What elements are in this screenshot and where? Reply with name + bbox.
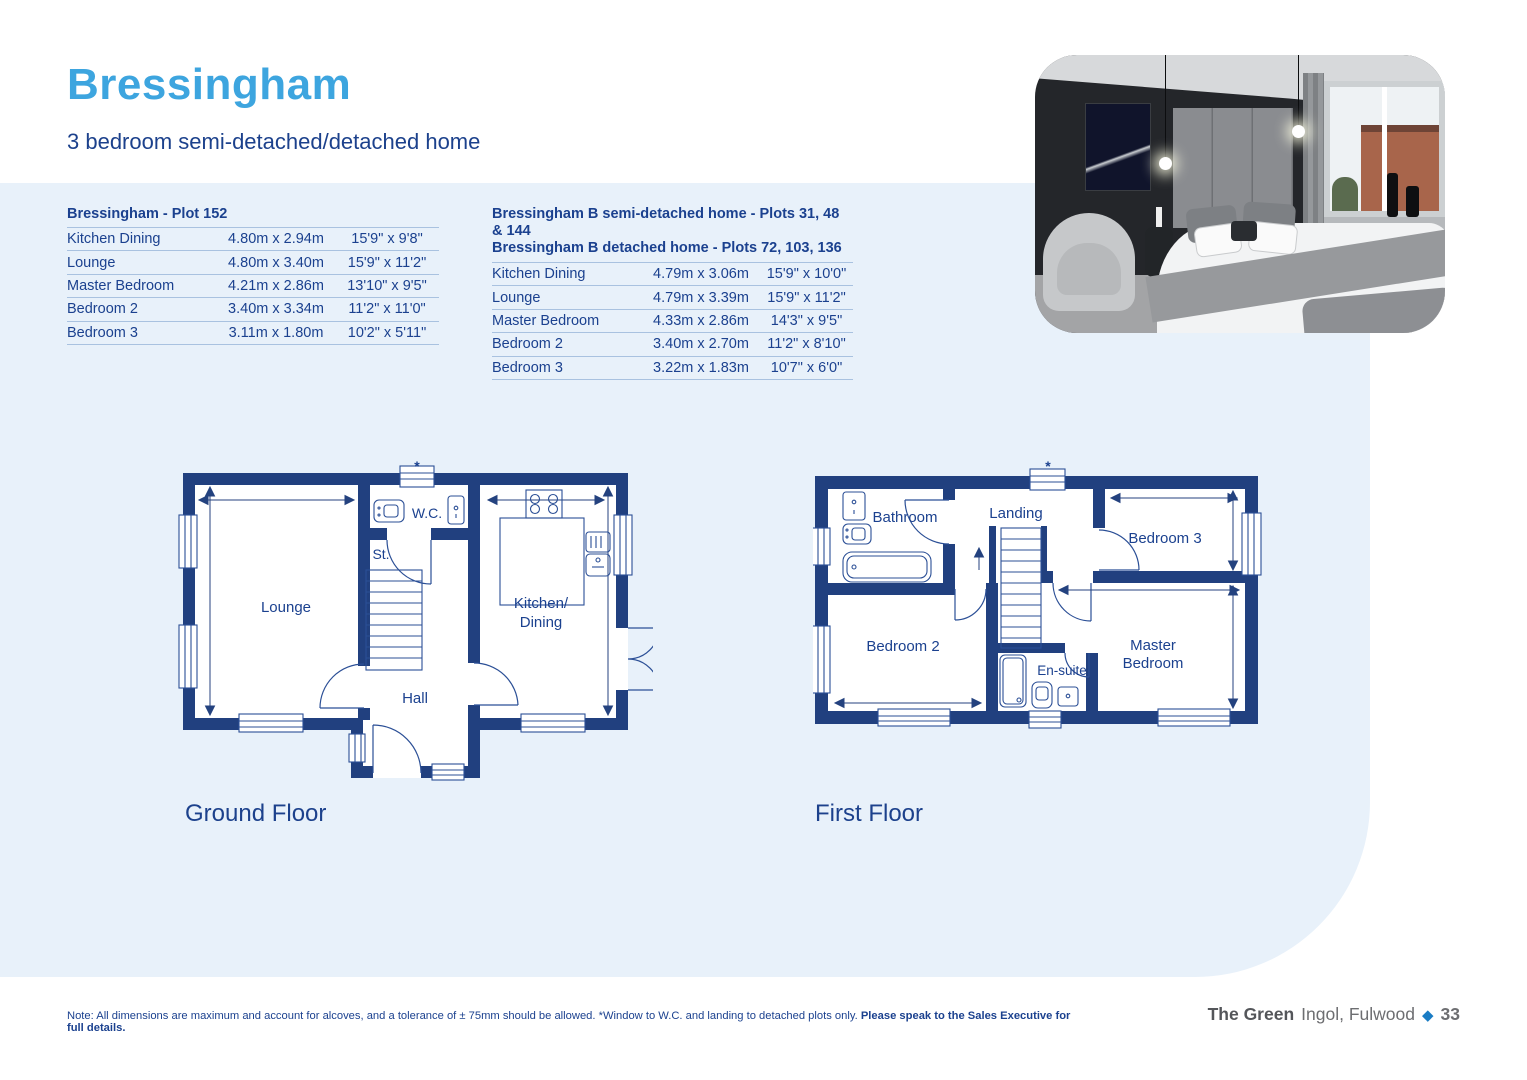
photo-pendant-cord [1298, 55, 1299, 127]
metric-size: 3.40m x 3.34m [217, 301, 335, 317]
page-title: Bressingham [67, 60, 351, 110]
imperial-size: 14'3" x 9'5" [760, 313, 853, 329]
development-name: The Green [1208, 1004, 1295, 1025]
room-label-hall: Hall [402, 690, 428, 707]
french-door-opening [616, 628, 628, 690]
metric-size: 4.33m x 2.86m [642, 313, 760, 329]
room-name: Bedroom 3 [67, 325, 217, 341]
photo-armchair-seat [1057, 243, 1121, 295]
metric-size: 4.79m x 3.06m [642, 266, 760, 282]
photo-candle [1156, 207, 1162, 227]
ground-floor-caption: Ground Floor [185, 800, 326, 828]
photo-house-outside [1361, 125, 1439, 211]
room-label-wc: W.C. [412, 505, 442, 521]
room-label-master-1: Master [1130, 637, 1176, 654]
dimensions-table-plot-152: Bressingham - Plot 152 Kitchen Dining 4.… [67, 206, 439, 345]
room-name: Bedroom 3 [492, 360, 642, 376]
imperial-size: 15'9" x 9'8" [335, 231, 439, 247]
photo-pendant-light [1292, 125, 1305, 138]
metric-size: 4.79m x 3.39m [642, 290, 760, 306]
table-row: Bedroom 2 3.40m x 2.70m 11'2" x 8'10" [492, 333, 853, 356]
room-name: Master Bedroom [492, 313, 642, 329]
metric-size: 3.40m x 2.70m [642, 336, 760, 352]
photo-vase [1406, 186, 1419, 217]
room-name: Lounge [492, 290, 642, 306]
room-label-bedroom3: Bedroom 3 [1128, 530, 1201, 547]
photo-wall-art [1085, 103, 1151, 191]
metric-size: 4.80m x 2.94m [217, 231, 335, 247]
room-name: Lounge [67, 255, 217, 271]
page-subtitle: 3 bedroom semi-detached/detached home [67, 129, 480, 155]
room-name: Bedroom 2 [67, 301, 217, 317]
table-row: Master Bedroom 4.33m x 2.86m 14'3" x 9'5… [492, 310, 853, 333]
window-note-asterisk: * [1045, 458, 1051, 474]
metric-size: 3.11m x 1.80m [217, 325, 335, 341]
front-door-opening [373, 766, 421, 778]
table-title-line1: Bressingham B semi-detached home - Plots… [492, 206, 853, 240]
table-row: Lounge 4.80m x 3.40m 15'9" x 11'2" [67, 251, 439, 274]
room-label-kitchen-1: Kitchen/ [514, 595, 569, 612]
ground-floor-plan: Lounge St. W.C. Kitchen/ Dining Hall * [178, 458, 653, 788]
room-label-landing: Landing [989, 505, 1042, 522]
metric-size: 4.21m x 2.86m [217, 278, 335, 294]
room-label-lounge: Lounge [261, 599, 311, 616]
metric-size: 4.80m x 3.40m [217, 255, 335, 271]
imperial-size: 13'10" x 9'5" [335, 278, 439, 294]
room-label-ensuite: En-suite [1037, 663, 1087, 678]
bedroom-photo [1035, 55, 1445, 333]
room-name: Master Bedroom [67, 278, 217, 294]
imperial-size: 10'7" x 6'0" [760, 360, 853, 376]
room-name: Bedroom 2 [492, 336, 642, 352]
imperial-size: 11'2" x 8'10" [760, 336, 853, 352]
footer-note-regular: Note: All dimensions are maximum and acc… [67, 1010, 861, 1022]
room-name: Kitchen Dining [492, 266, 642, 282]
table-title-line2: Bressingham B detached home - Plots 72, … [492, 240, 853, 257]
room-name: Kitchen Dining [67, 231, 217, 247]
table-row: Lounge 4.79m x 3.39m 15'9" x 11'2" [492, 286, 853, 309]
first-floor-plan: Bathroom Landing Bedroom 3 Bedroom 2 En-… [813, 458, 1263, 788]
imperial-size: 15'9" x 10'0" [760, 266, 853, 282]
room-label-master-2: Bedroom [1123, 655, 1184, 672]
footer-development: The Green Ingol, Fulwood ◆ 33 [1208, 1004, 1460, 1025]
table-row: Bedroom 3 3.11m x 1.80m 10'2" x 5'11" [67, 322, 439, 345]
dimensions-table-plots-b: Bressingham B semi-detached home - Plots… [492, 206, 853, 380]
imperial-size: 11'2" x 11'0" [335, 301, 439, 317]
imperial-size: 15'9" x 11'2" [335, 255, 439, 271]
photo-window [1324, 81, 1445, 217]
photo-pendant-light [1159, 157, 1172, 170]
photo-pendant-cord [1165, 55, 1166, 159]
photo-curtain [1303, 73, 1324, 225]
metric-size: 3.22m x 1.83m [642, 360, 760, 376]
table-title: Bressingham B semi-detached home - Plots… [492, 206, 853, 263]
first-floor-caption: First Floor [815, 800, 923, 828]
table-row: Bedroom 3 3.22m x 1.83m 10'7" x 6'0" [492, 357, 853, 380]
table-row: Kitchen Dining 4.79m x 3.06m 15'9" x 10'… [492, 263, 853, 286]
footer-note: Note: All dimensions are maximum and acc… [67, 1010, 1077, 1034]
window-note-asterisk: * [414, 458, 420, 474]
table-row: Kitchen Dining 4.80m x 2.94m 15'9" x 9'8… [67, 228, 439, 251]
development-location: Ingol, Fulwood [1301, 1004, 1415, 1025]
room-label-bedroom2: Bedroom 2 [866, 638, 939, 655]
room-label-kitchen-2: Dining [520, 614, 563, 631]
table-row: Master Bedroom 4.21m x 2.86m 13'10" x 9'… [67, 275, 439, 298]
room-label-bathroom: Bathroom [872, 509, 937, 526]
photo-vase [1387, 173, 1398, 217]
table-title: Bressingham - Plot 152 [67, 206, 439, 228]
photo-bush [1332, 177, 1358, 211]
photo-cushion [1231, 221, 1257, 241]
imperial-size: 15'9" x 11'2" [760, 290, 853, 306]
diamond-icon: ◆ [1422, 1006, 1434, 1024]
page-number: 33 [1441, 1004, 1460, 1025]
imperial-size: 10'2" x 5'11" [335, 325, 439, 341]
room-label-stairs: St. [372, 546, 389, 562]
table-row: Bedroom 2 3.40m x 3.34m 11'2" x 11'0" [67, 298, 439, 321]
